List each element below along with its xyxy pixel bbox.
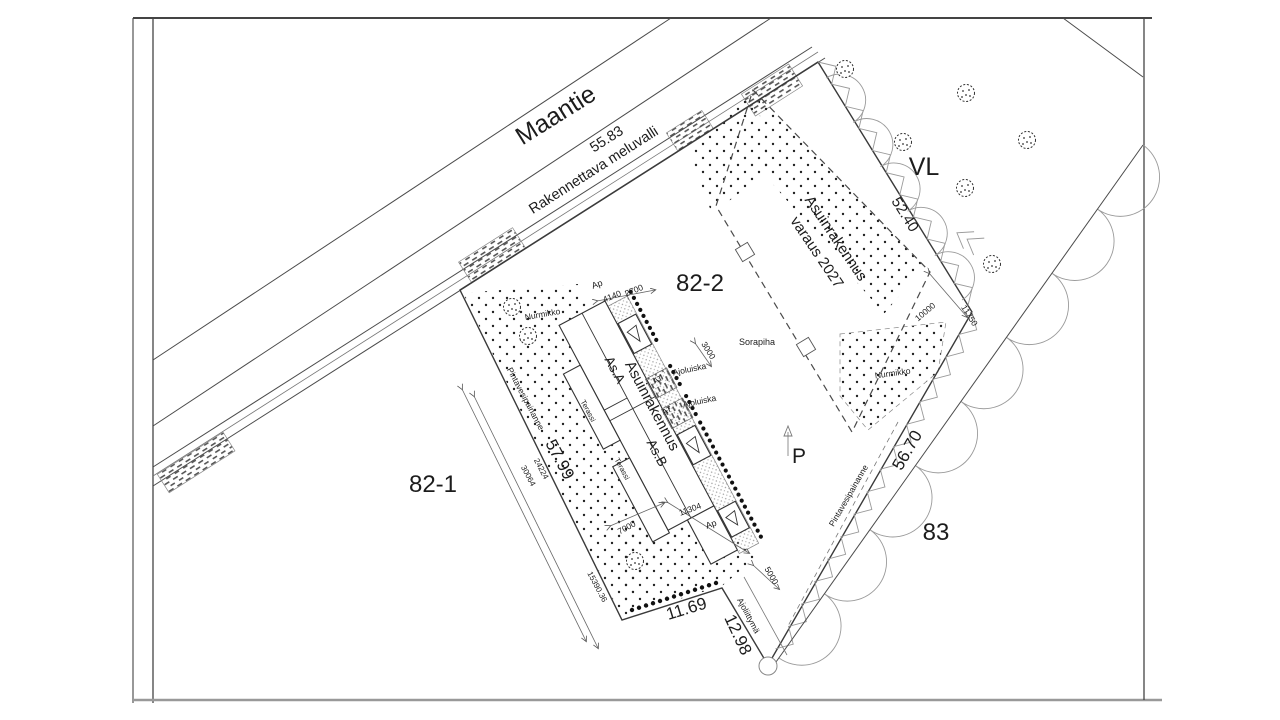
boundary-decorations <box>775 62 1159 665</box>
boundary-corner-marker <box>759 657 777 675</box>
planting-dot <box>700 585 704 589</box>
boundary-notch <box>796 337 815 356</box>
north-arrow <box>784 426 792 456</box>
road-maantie <box>153 18 771 426</box>
north-letter: P <box>792 445 806 468</box>
planting-dot <box>672 594 676 598</box>
ramp-label-1: Ajoluiska <box>672 361 708 378</box>
tree-icon <box>984 256 1001 273</box>
planting-dot <box>630 608 634 612</box>
tree-icon <box>520 328 537 345</box>
planting-dot <box>637 606 641 610</box>
site-plan-canvas: Maantie55.83Rakennettava meluvalli82-282… <box>0 0 1280 720</box>
tree-icon <box>627 553 644 570</box>
tree-icon <box>1019 132 1036 149</box>
slope-chevron-icon <box>952 224 985 255</box>
parcel-82-2: 82-2 <box>676 270 724 297</box>
planting-dot <box>679 592 683 596</box>
boundary-notch <box>735 242 754 261</box>
planting-dot <box>686 590 690 594</box>
tree-icon <box>957 180 974 197</box>
dim-5000: 5000 <box>763 565 781 587</box>
planting-dot <box>665 597 669 601</box>
tree-icon <box>837 61 854 78</box>
parcel-82-1: 82-1 <box>409 471 457 498</box>
planting-dot <box>644 603 648 607</box>
swale-label-right: Pintavesipainanne <box>827 463 871 528</box>
planting-dot <box>651 601 655 605</box>
planting-dot <box>693 588 697 592</box>
tree-icon <box>958 85 975 102</box>
parcel-83: 83 <box>923 519 950 546</box>
tree-icon <box>504 299 521 316</box>
dim-52-40: 52.40 <box>888 194 922 235</box>
dim-3000: 3000 <box>699 340 718 362</box>
planting-dot <box>714 581 718 585</box>
ap-label-top: Ap <box>590 278 604 291</box>
tree-icon <box>895 134 912 151</box>
gravel-yard-label: Sorapiha <box>739 337 775 347</box>
dim-30064: 30064 <box>519 464 538 488</box>
dim-11750: 11750 <box>959 303 980 328</box>
planting-dot <box>707 583 711 587</box>
dim-10000: 10000 <box>913 300 938 323</box>
planting-dot <box>658 599 662 603</box>
site-plan-drawing: Maantie55.83Rakennettava meluvalli82-282… <box>0 0 1280 720</box>
area-vl: VL <box>909 153 940 181</box>
